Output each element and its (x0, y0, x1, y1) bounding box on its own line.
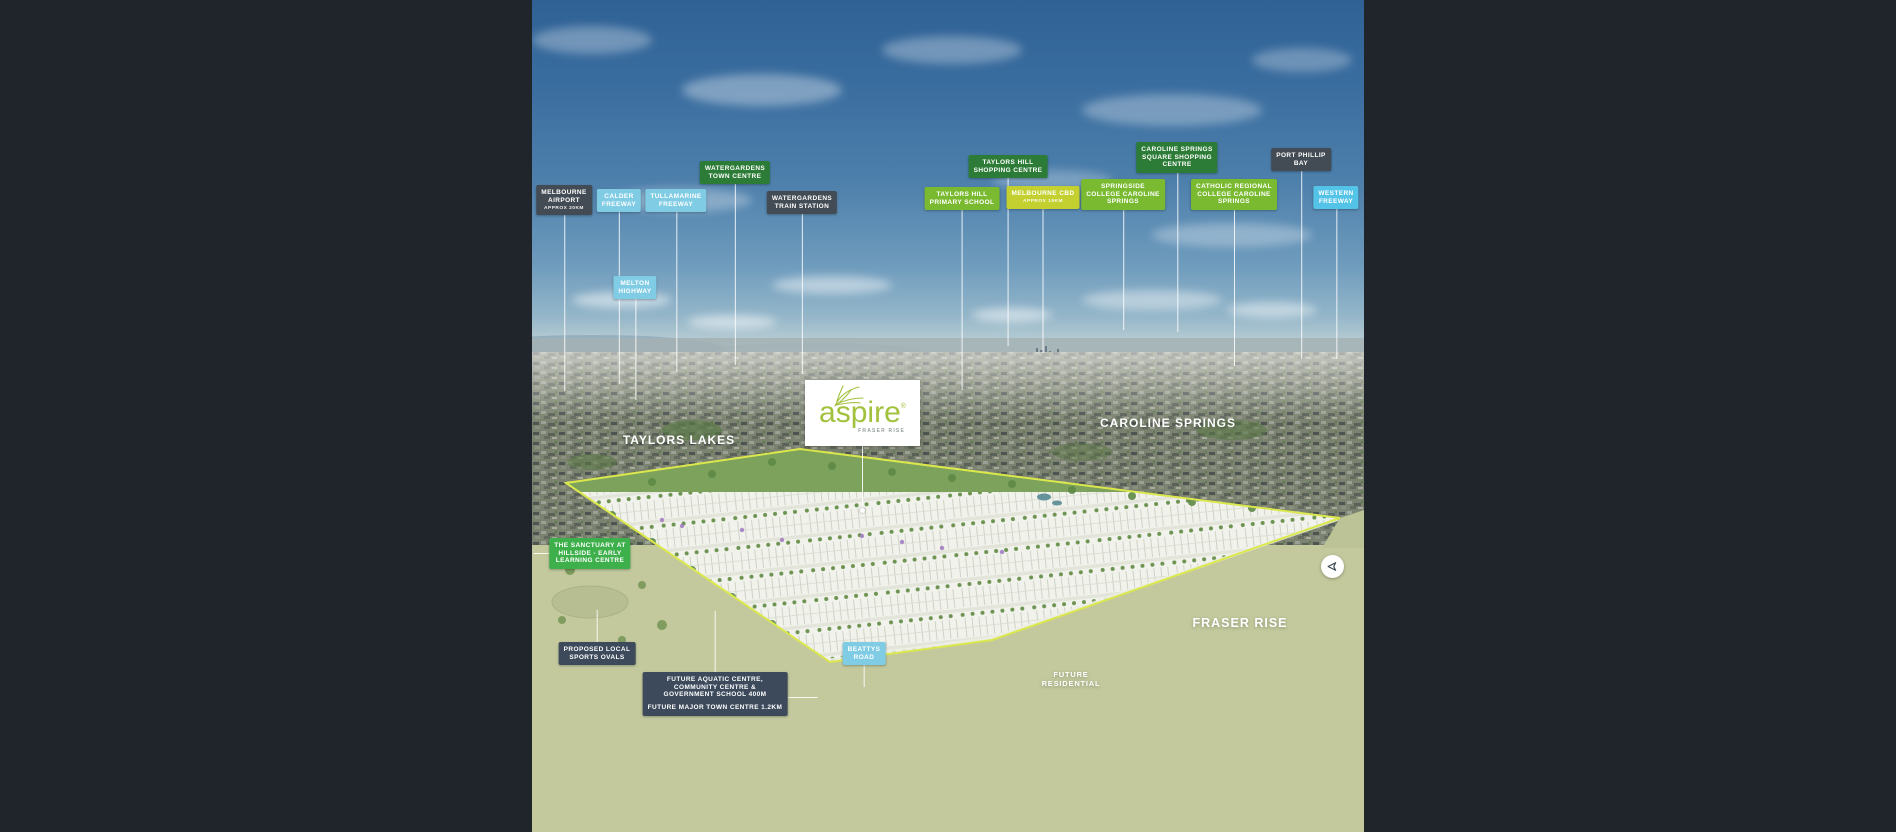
callout-calder-freeway: CALDERFREEWAY (597, 189, 641, 212)
callout-future-aquatic-centre: FUTURE AQUATIC CENTRE,COMMUNITY CENTRE &… (643, 672, 788, 716)
callout-caroline-springs-square-shopping-centre: CAROLINE SPRINGSSQUARE SHOPPINGCENTRE (1136, 142, 1217, 173)
send-icon (1325, 559, 1340, 574)
aspire-logo-card: aspire® FRASER RISE (805, 380, 920, 446)
callout-catholic-regional-college-caroline-springs: CATHOLIC REGIONALCOLLEGE CAROLINESPRINGS (1191, 179, 1277, 210)
callout-tullamarine-freeway: TULLAMARINEFREEWAY (645, 189, 706, 212)
callout-watergardens-town-centre: WATERGARDENSTOWN CENTRE (700, 161, 770, 184)
leader-line (564, 215, 565, 391)
leader-line (1123, 210, 1124, 330)
brand-name: aspire® (805, 398, 920, 428)
callout-melbourne-airport: MELBOURNEAIRPORTAPPROX 20KM (536, 185, 592, 215)
leader-line (1301, 171, 1302, 359)
callout-port-phillip-bay: PORT PHILLIPBAY (1271, 148, 1331, 171)
leader-line (1043, 209, 1044, 353)
region-label-fraser-rise: FRASER RISE (1192, 616, 1287, 632)
leader-line (676, 212, 677, 372)
leader-line (635, 299, 636, 400)
photo: aspire® FRASER RISE MELBOURNEAIRPORTAPPR… (532, 0, 1364, 832)
leader-line (1177, 173, 1178, 332)
region-label-taylors-lakes: TAYLORS LAKES (623, 433, 735, 448)
leader-line (533, 553, 549, 554)
lake (1037, 494, 1051, 501)
callout-beattys-road: BEATTYSROAD (843, 642, 886, 665)
leader-line (715, 611, 716, 672)
logo-leader-dot (860, 508, 865, 513)
callout-taylors-hill-shopping-centre: TAYLORS HILLSHOPPING CENTRE (969, 155, 1048, 178)
leader-line (1336, 209, 1337, 359)
leader-line (864, 665, 865, 687)
callout-taylors-hill-primary-school: TAYLORS HILLPRIMARY SCHOOL (925, 187, 1000, 210)
callout-the-sanctuary-at-hillside: THE SANCTUARY ATHILLSIDE - EARLYLEARNING… (549, 538, 630, 569)
callout-melbourne-cbd: MELBOURNE CBDAPPROX 19KM (1007, 186, 1080, 209)
callout-springside-college-caroline-springs: SPRINGSIDECOLLEGE CAROLINESPRINGS (1081, 179, 1165, 210)
leader-line (787, 697, 817, 698)
leader-line (802, 214, 803, 374)
callout-melton-highway: MELTONHIGHWAY (613, 276, 656, 299)
region-label-caroline-springs: CAROLINE SPRINGS (1100, 416, 1236, 431)
region-label-future-residential: FUTURERESIDENTIAL (1042, 670, 1101, 689)
masterplan-stage: aspire® FRASER RISE MELBOURNEAIRPORTAPPR… (0, 0, 1896, 832)
share-button[interactable] (1321, 555, 1344, 578)
logo-leader-line (862, 446, 863, 510)
leader-line (735, 184, 736, 365)
callout-watergardens-train-station: WATERGARDENSTRAIN STATION (767, 191, 837, 214)
lake (1052, 501, 1062, 506)
callout-proposed-local-sports-ovals: PROPOSED LOCALSPORTS OVALS (559, 642, 636, 665)
leader-line (597, 610, 598, 642)
brand-subtitle: FRASER RISE (858, 428, 905, 434)
callout-western-freeway: WESTERNFREEWAY (1313, 186, 1358, 209)
registered-mark: ® (901, 403, 906, 410)
leader-line (1234, 210, 1235, 366)
leader-line (962, 210, 963, 390)
